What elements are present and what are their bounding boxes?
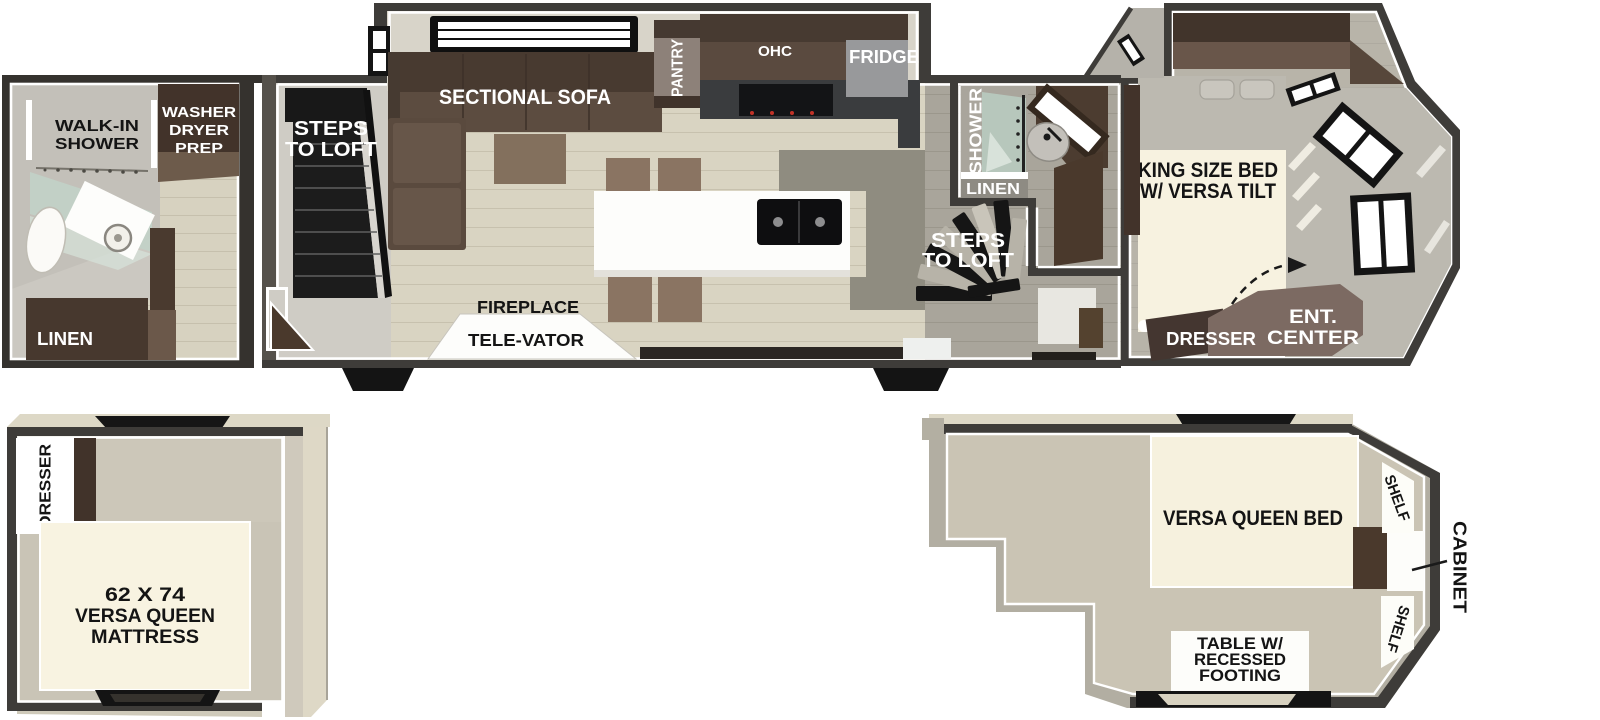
- svg-text:MATTRESS: MATTRESS: [91, 626, 199, 648]
- svg-text:DRYER: DRYER: [169, 122, 229, 139]
- svg-text:LINEN: LINEN: [37, 329, 93, 349]
- svg-text:KING SIZE BED: KING SIZE BED: [1138, 159, 1278, 182]
- svg-text:SHOWER: SHOWER: [55, 136, 139, 153]
- svg-text:TO LOFT: TO LOFT: [922, 250, 1014, 272]
- svg-text:LINEN: LINEN: [966, 181, 1020, 198]
- svg-text:PANTRY: PANTRY: [670, 39, 687, 97]
- svg-text:SHOWER: SHOWER: [966, 88, 986, 174]
- svg-text:DRESSER: DRESSER: [38, 444, 55, 528]
- svg-text:CABINET: CABINET: [1450, 521, 1470, 613]
- svg-text:VERSA QUEEN: VERSA QUEEN: [75, 605, 215, 627]
- svg-text:62 X 74: 62 X 74: [105, 584, 185, 606]
- svg-text:PREP: PREP: [175, 140, 223, 157]
- svg-text:W/ VERSA TILT: W/ VERSA TILT: [1140, 180, 1276, 203]
- svg-text:TELE-VATOR: TELE-VATOR: [468, 330, 584, 350]
- svg-text:FOOTING: FOOTING: [1199, 667, 1281, 685]
- svg-text:WASHER: WASHER: [162, 104, 236, 121]
- svg-text:WALK-IN: WALK-IN: [55, 118, 139, 135]
- svg-text:DRESSER: DRESSER: [1166, 329, 1256, 349]
- svg-text:STEPS: STEPS: [931, 230, 1005, 252]
- svg-text:ENT.: ENT.: [1289, 307, 1337, 328]
- svg-text:STEPS: STEPS: [294, 118, 368, 140]
- svg-text:VERSA QUEEN BED: VERSA QUEEN BED: [1163, 507, 1343, 530]
- svg-text:FRIDGE: FRIDGE: [849, 47, 919, 67]
- svg-text:FIREPLACE: FIREPLACE: [477, 297, 579, 317]
- svg-text:CENTER: CENTER: [1267, 328, 1359, 349]
- svg-text:TO LOFT: TO LOFT: [285, 139, 377, 161]
- svg-text:SECTIONAL SOFA: SECTIONAL SOFA: [439, 86, 611, 109]
- svg-text:OHC: OHC: [758, 43, 792, 60]
